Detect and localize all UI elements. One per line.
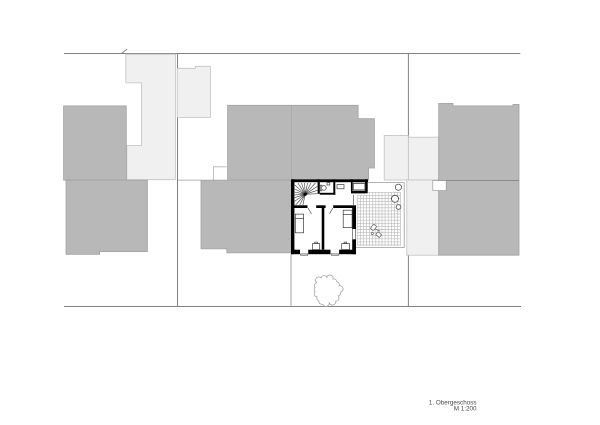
svg-text:M 1:200: M 1:200 [454,406,477,413]
